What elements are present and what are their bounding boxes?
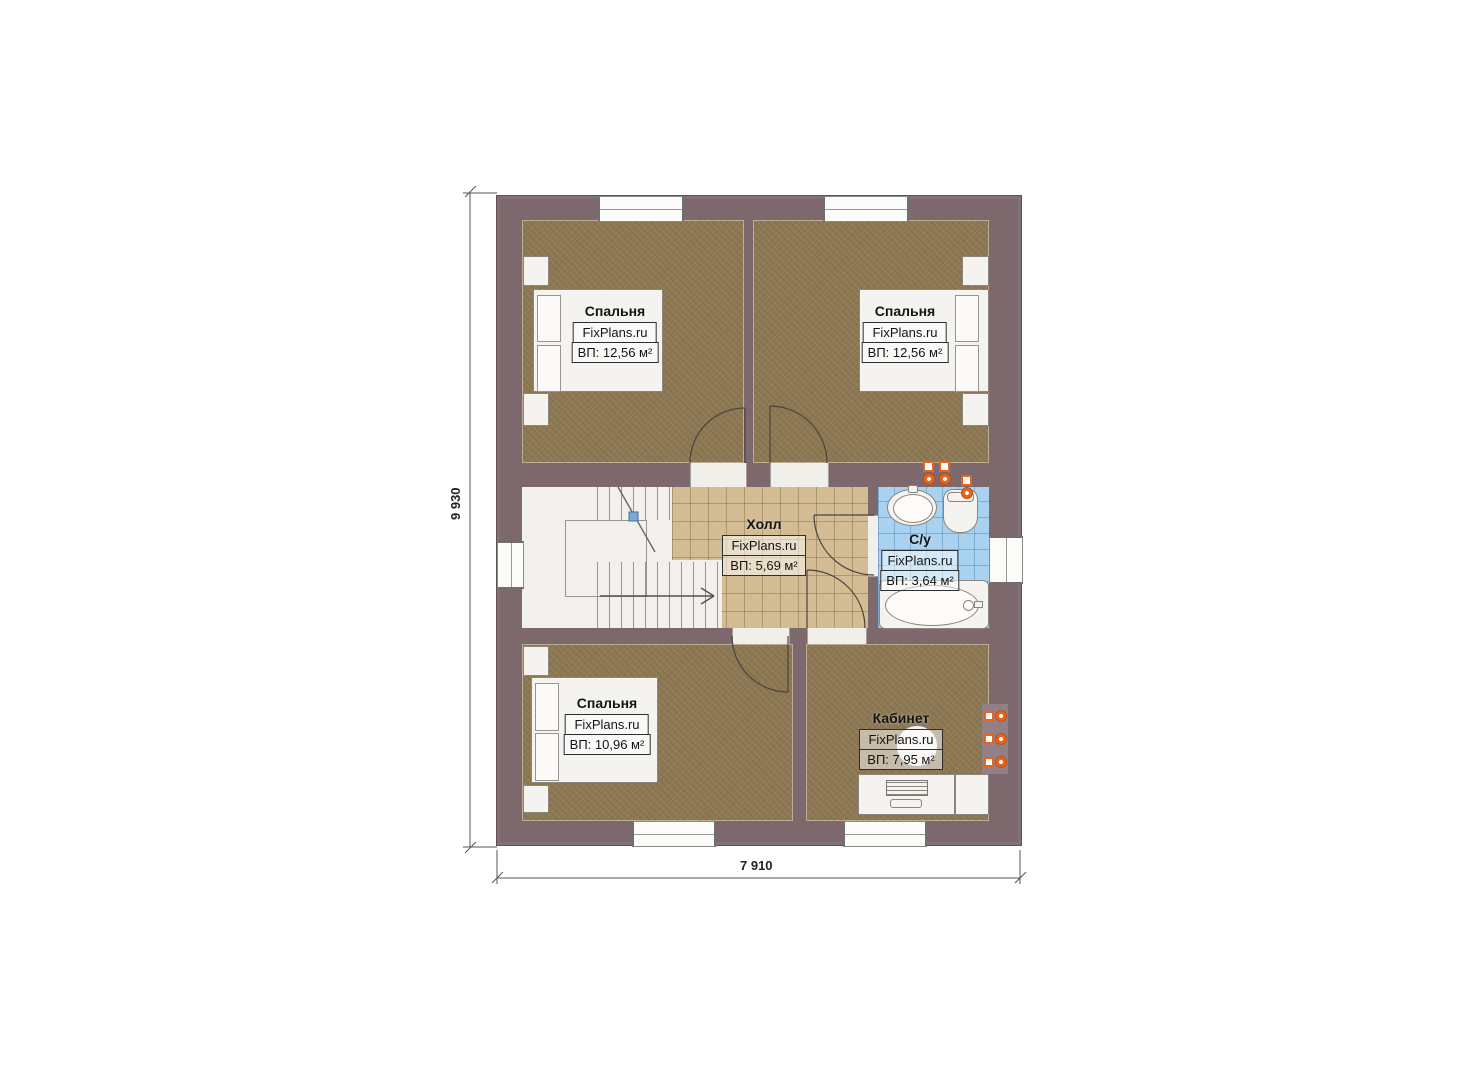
door-opening-office [807,628,867,644]
room-label-bedroom-bottom-left: Спальня FixPlans.ru ВП: 10,96 м² [564,695,651,755]
floor-plan-canvas: Спальня FixPlans.ru ВП: 12,56 м² Спальня… [0,0,1474,1080]
room-label-bedroom-top-left: Спальня FixPlans.ru ВП: 12,56 м² [572,303,659,363]
area-label: ВП: 12,56 м² [572,342,659,363]
area-label: ВП: 7,95 м² [859,749,943,770]
window-top-right [823,196,909,222]
room-label-hall: Холл FixPlans.ru ВП: 5,69 м² [722,516,806,576]
flue-icon [961,487,973,499]
flue-icon [923,473,935,485]
radiator-icon [984,757,994,767]
pillow [955,295,979,342]
flue-icon [939,473,951,485]
nightstand [523,256,549,286]
room-name: Спальня [875,303,935,319]
desk-keyboard [890,799,922,808]
room-label-bedroom-top-right: Спальня FixPlans.ru ВП: 12,56 м² [862,303,949,363]
brand-label: FixPlans.ru [565,714,649,735]
radiator-icon [995,733,1007,745]
pillow [537,345,561,392]
pillow [535,733,559,781]
window-top-left [598,196,684,222]
brand-label: FixPlans.ru [863,322,947,343]
sink-tap [908,485,918,493]
room-name: С/у [909,531,931,547]
room-name: Спальня [585,303,645,319]
door-opening-bedroom-top-right [770,463,829,487]
door-opening-bathroom [868,515,878,577]
sink-basin [893,494,933,523]
brand-label: FixPlans.ru [722,535,806,556]
pillow [535,683,559,731]
room-label-office: Кабинет FixPlans.ru ВП: 7,95 м² [859,710,943,770]
stair-treads-lower [597,562,719,628]
dimension-width: 7 910 [740,858,773,873]
radiator-icon [995,756,1007,768]
nightstand [962,256,989,286]
nightstand [523,646,549,676]
radiator-icon [984,711,994,721]
area-label: ВП: 10,96 м² [564,734,651,755]
door-opening-bedroom-bottom-left [732,628,790,644]
stair-treads-upper [597,487,673,520]
office-side-table [955,774,989,815]
room-label-bathroom: С/у FixPlans.ru ВП: 3,64 м² [880,531,959,591]
radiator-icon [995,710,1007,722]
bathtub-drain [963,600,974,611]
wall-hall-north [522,463,989,487]
brand-label: FixPlans.ru [573,322,657,343]
radiator-icon [984,734,994,744]
wall-between-top-bedrooms [744,220,753,463]
window-bottom-right [843,821,927,847]
flue-icon [939,461,950,472]
flue-icon [923,461,934,472]
room-name: Кабинет [873,710,930,726]
door-opening-bedroom-top-left [690,463,747,487]
window-right [989,536,1023,584]
room-name: Холл [746,516,781,532]
brand-label: FixPlans.ru [859,729,943,750]
window-bottom-left [632,821,716,847]
bathtub-tap [974,601,983,608]
nightstand [962,393,989,426]
pillow [955,345,979,392]
wall-between-bottom-rooms [793,644,806,821]
area-label: ВП: 5,69 м² [722,555,806,576]
window-left [497,541,524,589]
nightstand [523,393,549,426]
dimension-height: 9 930 [448,487,463,520]
desk-monitor [886,780,928,796]
brand-label: FixPlans.ru [881,550,958,571]
area-label: ВП: 3,64 м² [880,570,959,591]
nightstand [523,785,549,813]
pillow [537,295,561,342]
area-label: ВП: 12,56 м² [862,342,949,363]
room-name: Спальня [577,695,637,711]
flue-icon [961,475,972,486]
